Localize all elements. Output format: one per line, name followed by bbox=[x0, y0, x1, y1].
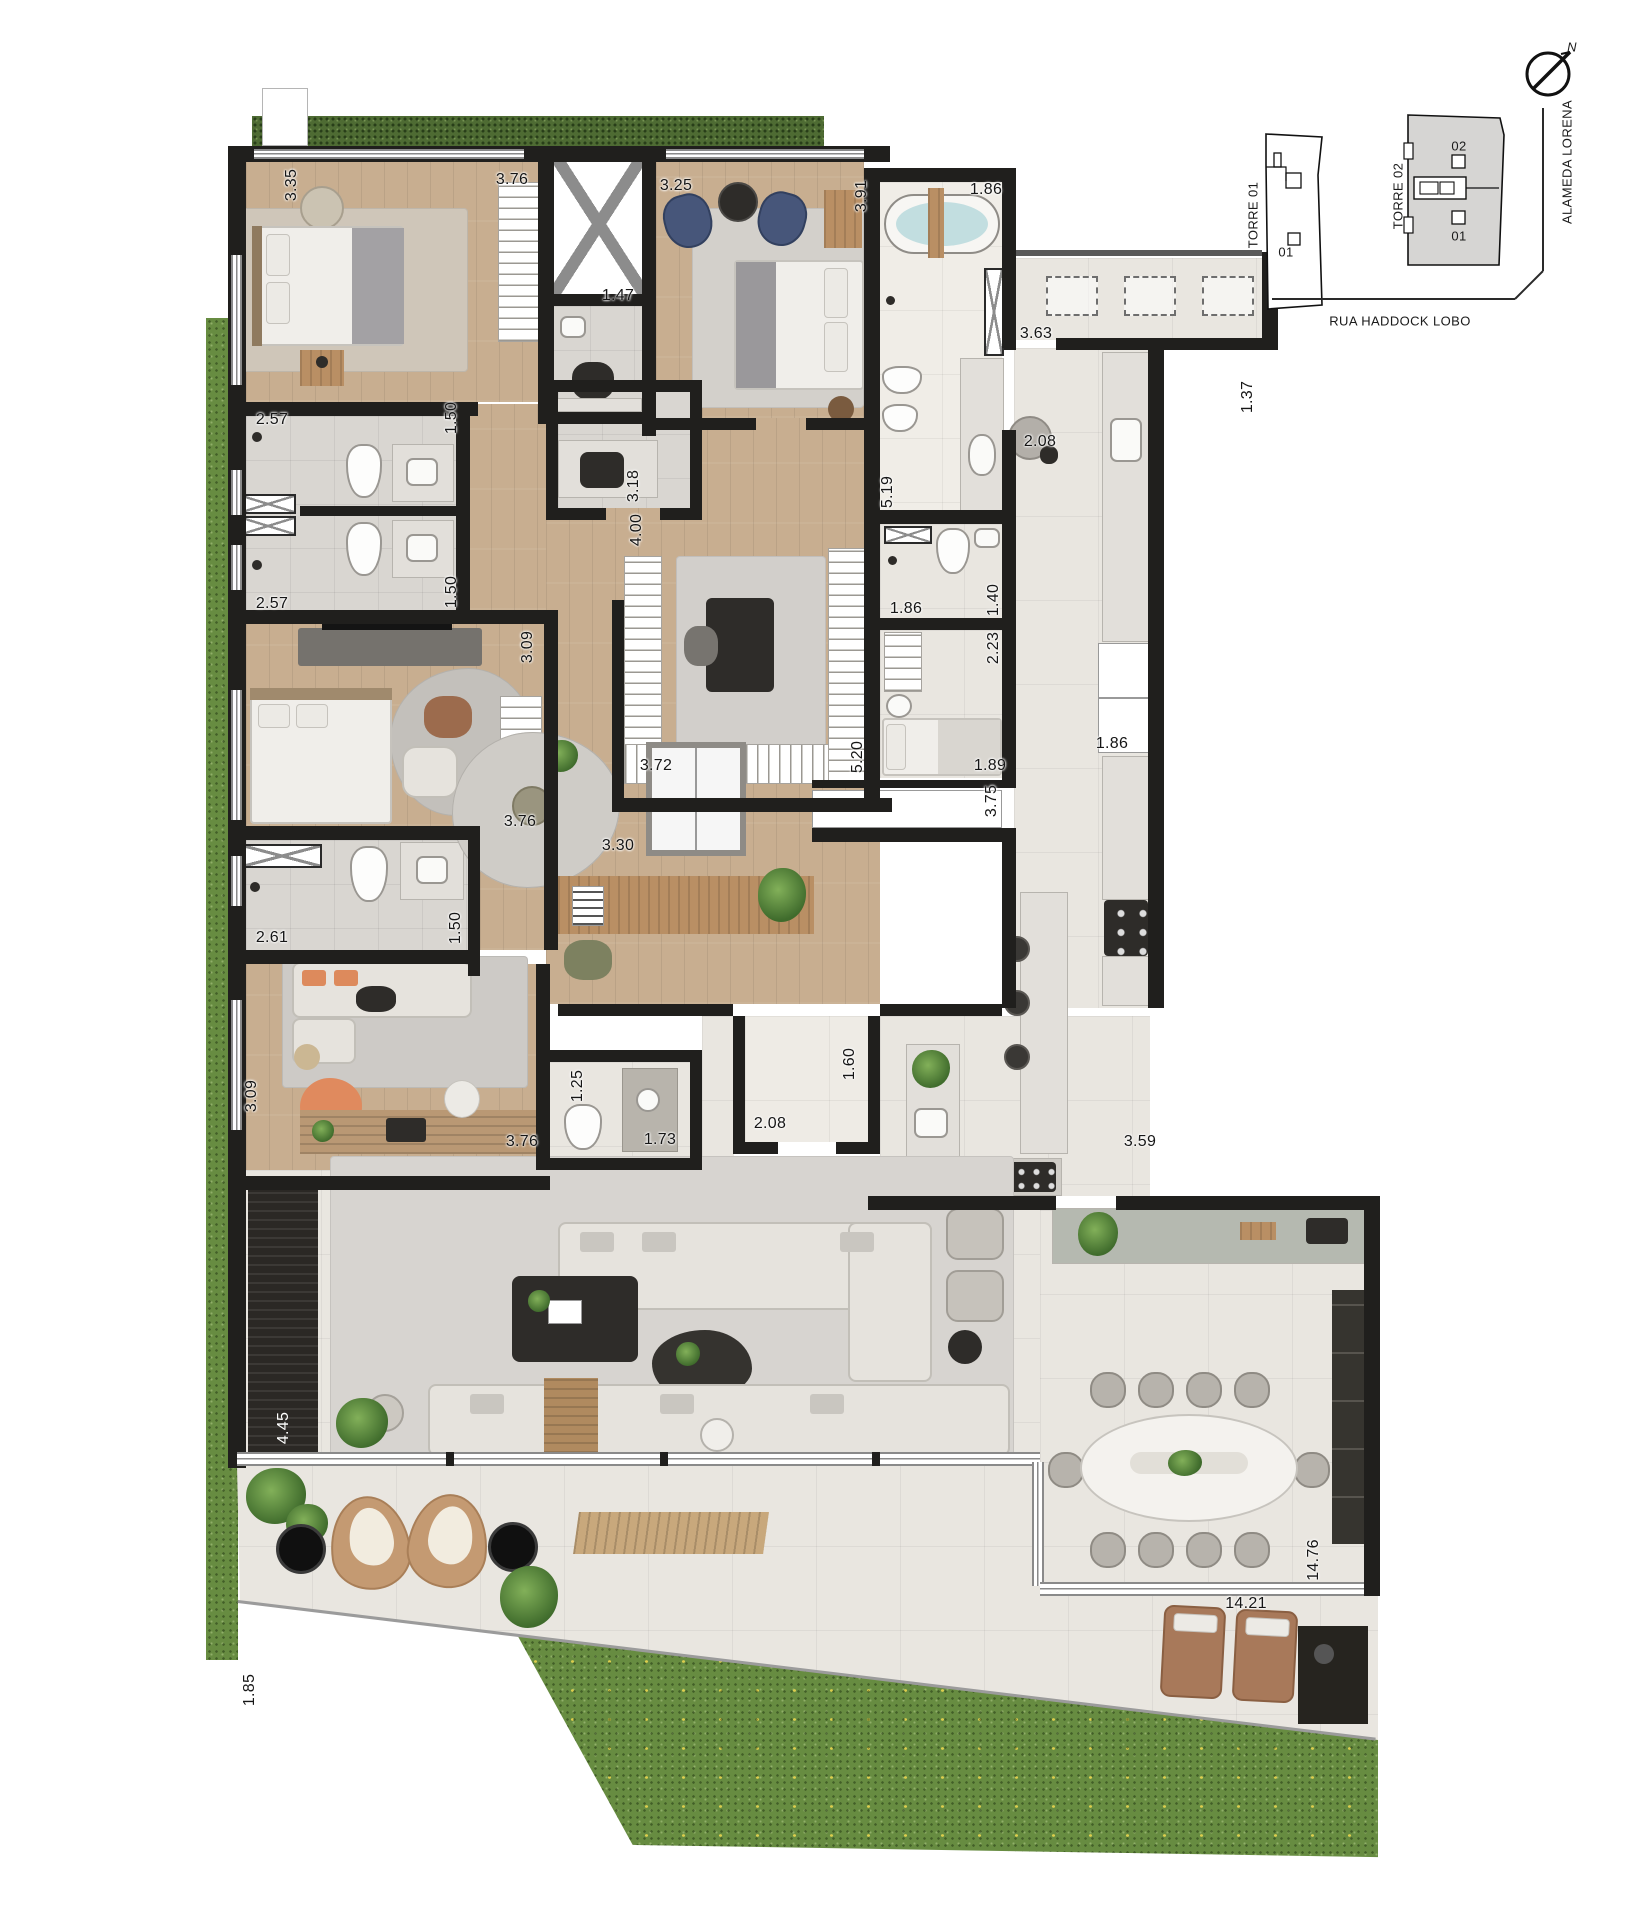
dimension-label: 1.47 bbox=[602, 288, 634, 304]
street-label-bottom: RUA HADDOCK LOBO bbox=[1329, 315, 1470, 328]
suite2-side-table bbox=[718, 182, 758, 222]
suite4-pillow2 bbox=[296, 704, 328, 728]
dimension-label: 2.23 bbox=[986, 632, 1002, 664]
window-suite2 bbox=[666, 149, 864, 159]
suite1-pillow bbox=[266, 234, 290, 276]
dining-chair3 bbox=[1186, 1372, 1222, 1408]
wall bbox=[868, 1016, 880, 1148]
bath-niche-shelf2 bbox=[240, 516, 296, 536]
bath1-basin bbox=[560, 316, 586, 338]
dimension-label: 5.20 bbox=[850, 741, 866, 773]
dimension-label: 2.57 bbox=[256, 596, 288, 612]
suite4-headboard bbox=[250, 688, 392, 700]
sofa-b-pillow bbox=[470, 1394, 504, 1414]
dining-chair10 bbox=[1294, 1452, 1330, 1488]
dining-chair2 bbox=[1138, 1372, 1174, 1408]
keyplan-tower2-unit-bottom: 01 bbox=[1451, 230, 1466, 243]
kitchen2-sink bbox=[914, 1108, 948, 1138]
wall bbox=[1116, 1196, 1164, 1210]
dimension-label: 1.40 bbox=[986, 584, 1002, 616]
dining-chair bbox=[1090, 1372, 1126, 1408]
suite4-tv-console bbox=[298, 628, 482, 666]
dimension-label: 2.08 bbox=[1024, 434, 1056, 450]
bath3-stone-sink bbox=[580, 452, 624, 488]
suite1-pillow2 bbox=[266, 282, 290, 324]
coffee-table-tray bbox=[548, 1300, 582, 1324]
suite5-bag bbox=[356, 986, 396, 1012]
bath4-shower-head bbox=[250, 882, 260, 892]
dimension-label: 1.37 bbox=[1240, 381, 1256, 413]
smallbath-shower-head bbox=[888, 556, 897, 565]
wall bbox=[733, 1142, 778, 1154]
suite5-desk-chair bbox=[444, 1080, 480, 1118]
dimension-label: 3.76 bbox=[504, 814, 536, 830]
master-shower-head bbox=[886, 296, 895, 305]
dimension-label: 4.45 bbox=[276, 1412, 292, 1444]
window-post bbox=[872, 1452, 880, 1466]
wall bbox=[864, 524, 880, 812]
dimension-label: 3.76 bbox=[506, 1134, 538, 1150]
dimension-label: 3.09 bbox=[520, 631, 536, 663]
street-label-side: ALAMEDA LORENA bbox=[1561, 100, 1574, 224]
terrace-firepit bbox=[276, 1524, 326, 1574]
wall bbox=[228, 950, 480, 964]
wall bbox=[1148, 348, 1164, 1008]
dimension-label: 1.86 bbox=[1096, 736, 1128, 752]
suite1-vanity-mirror bbox=[300, 186, 344, 230]
window-dining-side bbox=[1032, 1462, 1044, 1586]
wall bbox=[546, 380, 558, 520]
wall bbox=[300, 506, 456, 516]
dining-chair5 bbox=[1090, 1532, 1126, 1568]
sofa-b-pillow3 bbox=[810, 1394, 844, 1414]
floor-plan: TORRE 01 01 TORRE 02 02 01 ALAMEDA LOREN… bbox=[0, 0, 1629, 1920]
suite5-side-table bbox=[294, 1044, 320, 1070]
suite1-headboard bbox=[252, 226, 262, 346]
dimension-label: 1.50 bbox=[444, 576, 460, 608]
suite4-armchair bbox=[402, 746, 458, 798]
wall bbox=[546, 412, 656, 424]
suite5-orange-pillow2 bbox=[334, 970, 358, 986]
wall bbox=[656, 418, 756, 430]
window-left-suite4 bbox=[231, 690, 242, 820]
dining-chair6 bbox=[1138, 1532, 1174, 1568]
dimension-label: 1.25 bbox=[570, 1070, 586, 1102]
elevator-shaft bbox=[552, 152, 646, 296]
living-side-table bbox=[948, 1330, 982, 1364]
wall bbox=[660, 508, 702, 520]
wall bbox=[642, 146, 656, 436]
wall bbox=[880, 1004, 1002, 1016]
service-appliance2 bbox=[1124, 276, 1176, 316]
living-armchair2 bbox=[946, 1270, 1004, 1322]
maid-shelf bbox=[884, 632, 922, 692]
dimension-label: 1.89 bbox=[974, 758, 1006, 774]
window-left-suite1 bbox=[231, 255, 242, 385]
dimension-label: 14.21 bbox=[1225, 1596, 1267, 1612]
living-marble-table bbox=[700, 1418, 734, 1452]
dimension-label: 3.18 bbox=[626, 470, 642, 502]
dimension-label: 1.86 bbox=[970, 182, 1002, 198]
wall bbox=[1056, 338, 1264, 350]
kitchen-counter-s2 bbox=[1102, 956, 1150, 1006]
terrace-grill-cabinet bbox=[1298, 1626, 1368, 1724]
dimension-label: 14.76 bbox=[1306, 1539, 1322, 1581]
bath2-shower-head bbox=[252, 432, 262, 442]
wall bbox=[228, 1176, 550, 1190]
wall bbox=[228, 826, 480, 840]
wall bbox=[612, 600, 624, 812]
smallbath-shelf bbox=[884, 526, 932, 544]
dimension-label: 2.57 bbox=[256, 412, 288, 428]
dining-chair4 bbox=[1234, 1372, 1270, 1408]
keyplan-tower1-label: TORRE 01 bbox=[1247, 182, 1260, 249]
wall bbox=[546, 508, 606, 520]
wall bbox=[880, 618, 1016, 630]
dimension-label: 1.60 bbox=[842, 1048, 858, 1080]
terrace-deck bbox=[573, 1512, 769, 1554]
keyplan-tower2-unit-top: 02 bbox=[1451, 140, 1466, 153]
suite1-wardrobe bbox=[498, 182, 540, 342]
dimension-label: 3.59 bbox=[1124, 1134, 1156, 1150]
sofa-b-pillow2 bbox=[660, 1394, 694, 1414]
dimension-label: 2.61 bbox=[256, 930, 288, 946]
window-social bbox=[237, 1452, 1040, 1466]
sofa-pillow bbox=[580, 1232, 614, 1252]
suite2-blanket bbox=[736, 262, 776, 388]
sofa-pillow2 bbox=[642, 1232, 676, 1252]
kitchen-island bbox=[1020, 892, 1068, 1154]
smallbath-basin bbox=[974, 528, 1000, 548]
dining-espresso bbox=[1306, 1218, 1348, 1244]
wall bbox=[1002, 430, 1016, 787]
closet-rack-left bbox=[624, 556, 662, 762]
bathtub-caddy bbox=[928, 188, 944, 258]
wall bbox=[612, 798, 892, 812]
living-armchair bbox=[946, 1208, 1004, 1260]
keyplan-tower2-label: TORRE 02 bbox=[1392, 163, 1405, 230]
master-sink bbox=[968, 434, 996, 476]
dining-board bbox=[1240, 1222, 1276, 1240]
floor-plan-canvas: TORRE 01 01 TORRE 02 02 01 ALAMEDA LOREN… bbox=[0, 0, 1629, 1920]
kitchen-counter-s bbox=[1102, 756, 1150, 900]
master-shower-glass bbox=[984, 268, 1004, 356]
dimension-label: 3.76 bbox=[496, 172, 528, 188]
wall bbox=[544, 840, 558, 950]
kitchen-counter-n bbox=[1102, 352, 1150, 642]
suite1-blanket bbox=[352, 228, 404, 344]
grill-circle bbox=[1314, 1644, 1334, 1664]
terrace-firepit2 bbox=[488, 1522, 538, 1572]
bath4-shelf bbox=[242, 844, 322, 868]
bath3l-shower-head bbox=[252, 560, 262, 570]
bath4-basin bbox=[416, 856, 448, 884]
bath1-shelf bbox=[556, 398, 642, 412]
window-post bbox=[446, 1452, 454, 1466]
wall bbox=[690, 1050, 702, 1170]
dimension-label: 3.75 bbox=[984, 785, 1000, 817]
top-left-ledge bbox=[262, 88, 308, 146]
wall bbox=[866, 510, 1016, 524]
suite1-lamp bbox=[316, 356, 328, 368]
dining-chair7 bbox=[1186, 1532, 1222, 1568]
window-left-suite5 bbox=[231, 1000, 242, 1130]
hall-green-pouf bbox=[564, 940, 612, 980]
maid-washtub bbox=[886, 694, 912, 718]
wall bbox=[868, 1196, 1056, 1210]
window-left-bath2 bbox=[231, 545, 242, 590]
window-left-bath bbox=[231, 470, 242, 515]
living-wood-console bbox=[544, 1378, 598, 1462]
window-suite1 bbox=[254, 149, 524, 159]
sofa-pillow3 bbox=[840, 1232, 874, 1252]
wall bbox=[544, 622, 558, 840]
island-hob bbox=[1010, 1162, 1056, 1192]
keyplan-tower1-unit: 01 bbox=[1278, 246, 1293, 259]
wall bbox=[864, 168, 880, 524]
wall bbox=[546, 380, 702, 392]
wall bbox=[733, 1016, 745, 1148]
north-label: N bbox=[1567, 41, 1577, 54]
lavabo-bowl bbox=[636, 1088, 660, 1112]
wall bbox=[1164, 1196, 1380, 1210]
dimension-label: 3.91 bbox=[854, 180, 870, 212]
service-parapet bbox=[1008, 250, 1262, 256]
bath-niche-shelf bbox=[240, 494, 296, 514]
wall bbox=[812, 828, 1016, 842]
corridor-left-floor bbox=[468, 404, 546, 610]
suite4-ottoman bbox=[424, 696, 472, 738]
kitchen-cooktop bbox=[1104, 900, 1148, 956]
wall bbox=[690, 380, 702, 520]
terrace-lounge bbox=[1160, 1604, 1227, 1699]
kitchen-sink bbox=[1110, 418, 1142, 462]
suite2-pillow2 bbox=[824, 322, 848, 372]
dimension-label: 3.72 bbox=[640, 758, 672, 774]
dimension-label: 3.09 bbox=[244, 1080, 260, 1112]
wall bbox=[1002, 168, 1016, 348]
dimension-label: 1.73 bbox=[644, 1132, 676, 1148]
dining-chair9 bbox=[1048, 1452, 1084, 1488]
office-chair bbox=[684, 626, 718, 666]
wall bbox=[1002, 830, 1016, 1008]
sideboard-logo-frame bbox=[572, 886, 604, 926]
wall bbox=[866, 168, 1016, 182]
dimension-label: 4.00 bbox=[629, 514, 645, 546]
wall bbox=[536, 1158, 702, 1170]
suite5-laptop bbox=[386, 1118, 426, 1142]
dimension-label: 1.50 bbox=[448, 912, 464, 944]
service-appliance bbox=[1046, 276, 1098, 316]
corridor-foyer-floor bbox=[702, 1016, 734, 1172]
wall bbox=[228, 610, 558, 624]
dimension-label: 3.25 bbox=[660, 178, 692, 194]
window-dining bbox=[1040, 1582, 1364, 1596]
suite2-pillow bbox=[824, 268, 848, 318]
wall bbox=[536, 1050, 702, 1062]
wall bbox=[558, 1004, 733, 1016]
top-hedge bbox=[252, 116, 824, 150]
dimension-label: 1.86 bbox=[890, 601, 922, 617]
dimension-label: 1.50 bbox=[444, 402, 460, 434]
suite5-orange-pillow bbox=[302, 970, 326, 986]
wall bbox=[806, 418, 878, 430]
bath2-basin bbox=[406, 458, 438, 486]
window-post bbox=[660, 1452, 668, 1466]
dimension-label: 5.19 bbox=[880, 476, 896, 508]
dimension-label: 2.08 bbox=[754, 1116, 786, 1132]
wall bbox=[1364, 1196, 1380, 1596]
dimension-label: 3.30 bbox=[602, 838, 634, 854]
dimension-label: 1.85 bbox=[242, 1674, 258, 1706]
bath3l-basin bbox=[406, 534, 438, 562]
maid-pillow bbox=[886, 724, 906, 770]
wall bbox=[836, 1142, 880, 1154]
dimension-label: 3.63 bbox=[1020, 326, 1052, 342]
dimension-label: 3.35 bbox=[284, 169, 300, 201]
terrace-lounge2 bbox=[1232, 1608, 1299, 1703]
suite4-pillow bbox=[258, 704, 290, 728]
kitchen-stool3 bbox=[1004, 1044, 1030, 1070]
window-left-bath4 bbox=[231, 856, 242, 906]
dining-chair8 bbox=[1234, 1532, 1270, 1568]
